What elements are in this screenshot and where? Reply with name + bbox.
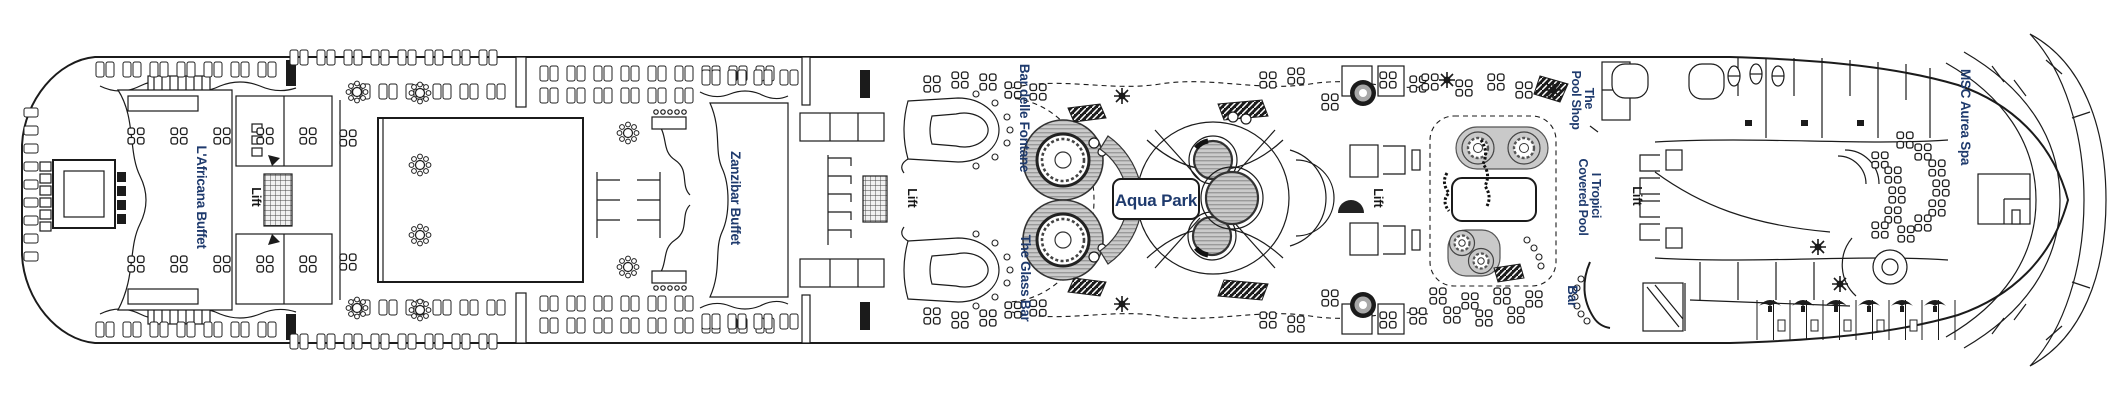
lounger-pair-icon (648, 88, 666, 103)
lounger-pair-icon (460, 84, 478, 99)
plant-icon (1832, 276, 1848, 292)
flower-icon (1488, 74, 1504, 90)
lounger-pair-icon (379, 84, 397, 99)
lounger-pair-icon (379, 300, 397, 315)
stool-icon (992, 294, 998, 300)
sqch-icon (1910, 320, 1917, 331)
label-zanzibar-buffet: Zanzibar Buffet (728, 151, 743, 246)
stool-icon (1531, 245, 1537, 251)
lounger-pair-icon (258, 322, 276, 337)
whirlpool-tub-icon (1450, 231, 1475, 256)
flower-icon (980, 310, 996, 326)
lounger-pair-icon (123, 322, 141, 337)
africana-buffet-room (118, 90, 232, 310)
flower-icon (1885, 207, 1901, 223)
stool-icon (992, 240, 998, 246)
stern-lounger-icon (24, 234, 38, 243)
gear-icon (409, 82, 431, 104)
lounger-pair-icon (780, 70, 798, 85)
label-i-tropici-covered-pool: I Tropici Covered Pool (1576, 159, 1603, 236)
flower-icon (1915, 144, 1931, 160)
bar-delle-fontane (902, 98, 999, 173)
stool-icon (992, 154, 998, 160)
lounger-pair-icon (621, 296, 639, 311)
umbrella-icon (1759, 300, 1781, 312)
lounger-pair-icon (452, 334, 470, 349)
lounger-pair-icon (648, 66, 666, 81)
flower-icon (1288, 316, 1304, 332)
plant-icon (1545, 82, 1561, 98)
flower-icon (952, 72, 968, 88)
stool-icon (1004, 280, 1010, 286)
zanzibar-lift-lobby (800, 70, 887, 330)
label-bar: Bar (1565, 285, 1580, 308)
lounger-pair-icon (567, 66, 585, 81)
flower-icon (1322, 290, 1338, 306)
lounger-pair-icon (540, 318, 558, 333)
stool-icon (1578, 276, 1584, 282)
flower-icon (924, 308, 940, 324)
gear-icon (409, 299, 431, 321)
stool-icon (1007, 127, 1013, 133)
lounger-pair-icon (648, 318, 666, 333)
flower-icon (340, 254, 356, 270)
label-bar-delle-fontane: Bar delle Fontane (1017, 64, 1032, 173)
flower-icon (1444, 307, 1460, 323)
open-deck (378, 110, 690, 290)
lounger-pair-icon (487, 84, 505, 99)
lounger-pair-icon (594, 296, 612, 311)
flower-icon (1898, 226, 1914, 242)
label-lift-4: Lift (1630, 186, 1644, 206)
lounger-pair-icon (675, 66, 693, 81)
flower-icon (1929, 160, 1945, 176)
lounger-pair-icon (177, 62, 195, 77)
gear-icon (409, 154, 431, 176)
flower-icon (1915, 215, 1931, 231)
sqch-icon (1811, 320, 1818, 331)
aft-bar (1584, 262, 1685, 331)
the-glass-bar (902, 227, 999, 302)
lounger-pair-icon (567, 296, 585, 311)
lounger-pair-icon (398, 334, 416, 349)
label-africana-buffet: L'Africana Buffet (194, 145, 209, 249)
lounger-pair-icon (540, 88, 558, 103)
stool-icon (973, 231, 979, 237)
flower-icon (1508, 307, 1524, 323)
lounger-pair-icon (540, 66, 558, 81)
stern-lounger-icon (24, 198, 38, 207)
label-lift-1: Lift (249, 187, 263, 207)
label-aqua-park: Aqua Park (1115, 191, 1198, 210)
flower-icon (1933, 180, 1949, 196)
stool-icon (1524, 237, 1530, 243)
stern-lounger-icon (24, 216, 38, 225)
flower-icon (1410, 308, 1426, 324)
flower-icon (1288, 68, 1304, 84)
aqua-park-zone: Aqua Park (1113, 112, 1334, 274)
umbrella-icon (1792, 300, 1814, 312)
flower-icon (1430, 288, 1446, 304)
banquet-table-top (652, 110, 686, 129)
hammam-room (1842, 238, 1907, 296)
flower-icon (1494, 288, 1510, 304)
lounger-pair-icon (702, 70, 720, 85)
flower-icon (1872, 152, 1888, 168)
lounger-pair-icon (621, 318, 639, 333)
stern-lounger-icon (24, 162, 38, 171)
stern-lounger-icon (24, 180, 38, 189)
stool-icon (973, 303, 979, 309)
lounger-pair-icon (96, 322, 114, 337)
stool-icon (1584, 318, 1590, 324)
whirlpool-tub-icon (1462, 132, 1494, 164)
gear-icon (409, 224, 431, 246)
whirlpool-bottom-icon (1350, 292, 1376, 318)
lounger-pair-icon (290, 334, 308, 349)
lounger-pair-icon (702, 314, 720, 329)
gear-icon (617, 122, 639, 144)
stern-lounger-icon (24, 144, 38, 153)
lounger-pair-icon (675, 88, 693, 103)
lounger-pair-icon (371, 334, 389, 349)
lounger-pair-icon (204, 62, 222, 77)
whirlpool-top-icon (1350, 80, 1376, 106)
lounger-pair-icon (780, 314, 798, 329)
plant-icon (1114, 88, 1130, 104)
stern-lounger-icon (24, 108, 38, 117)
lounger-pair-icon (204, 322, 222, 337)
flower-icon (340, 130, 356, 146)
deck-plan-page: Aqua Park (0, 0, 2109, 400)
lounger-pair-icon (567, 318, 585, 333)
lounger-pair-icon (231, 322, 249, 337)
flower-icon (1476, 310, 1492, 326)
flower-icon (1456, 80, 1472, 96)
whirlpool-tub-icon (1508, 132, 1540, 164)
umbrella-icon (1891, 300, 1913, 312)
stool-icon (1578, 311, 1584, 317)
lounger-pair-icon (96, 62, 114, 77)
stern-lounger-icon (24, 126, 38, 135)
plant-icon (1810, 239, 1826, 255)
sqch-icon (1877, 320, 1884, 331)
lounger-pair-icon (594, 66, 612, 81)
flower-icon (1929, 200, 1945, 216)
label-lift-3: Lift (1371, 188, 1385, 208)
label-msc-aurea-spa: MSC Aurea Spa (1958, 69, 1973, 166)
bow-room (1978, 174, 2030, 224)
lounger-pair-icon (479, 334, 497, 349)
lounger-pair-icon (594, 318, 612, 333)
covered-pool (1452, 178, 1536, 221)
lounger-pair-icon (433, 300, 451, 315)
lounger-pair-icon (460, 300, 478, 315)
sqch-icon (1844, 320, 1851, 331)
flower-icon (924, 76, 940, 92)
flower-icon (1322, 94, 1338, 110)
lounger-pair-icon (150, 62, 168, 77)
stool-icon (973, 91, 979, 97)
round-pool-top (1023, 120, 1103, 200)
lounger-pair-icon (648, 296, 666, 311)
sqch-icon (1778, 320, 1785, 331)
flower-icon (952, 312, 968, 328)
lounger-pair-icon (621, 66, 639, 81)
umbrella-icon (1924, 300, 1946, 312)
lounger-pair-icon (425, 334, 443, 349)
lounger-pair-icon (675, 296, 693, 311)
flower-icon (1526, 291, 1542, 307)
zanzibar-buffet-room (710, 103, 788, 297)
stool-icon (1004, 140, 1010, 146)
stool-icon (1536, 254, 1542, 260)
lounger-pair-icon (487, 300, 505, 315)
aqua-park-sign: Aqua Park (1113, 179, 1199, 219)
whirlpool-tub-icon (1469, 249, 1494, 274)
flower-icon (1897, 132, 1913, 148)
gear-icon (617, 256, 639, 278)
flower-icon (1462, 293, 1478, 309)
gear-icon (346, 81, 368, 103)
stool-icon (1538, 263, 1544, 269)
flower-icon (1516, 82, 1532, 98)
flower-icon (1885, 167, 1901, 183)
deck-plan-svg: Aqua Park (0, 0, 2109, 400)
flower-icon (1872, 222, 1888, 238)
flower-icon (980, 74, 996, 90)
lounger-pair-icon (258, 62, 276, 77)
stool-icon (992, 100, 998, 106)
label-lift-2: Lift (905, 188, 919, 208)
plant-icon (1439, 72, 1455, 88)
stool-icon (973, 163, 979, 169)
lounger-pair-icon (594, 88, 612, 103)
banquet-table-bottom (652, 271, 686, 290)
lounger-pair-icon (433, 84, 451, 99)
plant-icon (1114, 296, 1130, 312)
lounger-pair-icon (344, 334, 362, 349)
lounger-pair-icon (123, 62, 141, 77)
label-pool-shop: The Pool Shop (1569, 70, 1596, 130)
lounger-pair-icon (231, 62, 249, 77)
stern-lounger-icon (24, 252, 38, 261)
lounger-pair-icon (675, 318, 693, 333)
round-pool-bottom (1023, 200, 1103, 280)
stool-icon (1004, 254, 1010, 260)
stool-icon (1007, 267, 1013, 273)
label-the-glass-bar: The Glass Bar (1018, 235, 1033, 323)
lounger-pair-icon (567, 88, 585, 103)
umbrella-icon (1858, 300, 1880, 312)
gear-icon (346, 297, 368, 319)
lounger-pair-icon (540, 296, 558, 311)
lounger-pair-icon (621, 88, 639, 103)
flower-icon (1889, 187, 1905, 203)
stool-icon (1004, 114, 1010, 120)
lounger-pair-icon (317, 334, 335, 349)
